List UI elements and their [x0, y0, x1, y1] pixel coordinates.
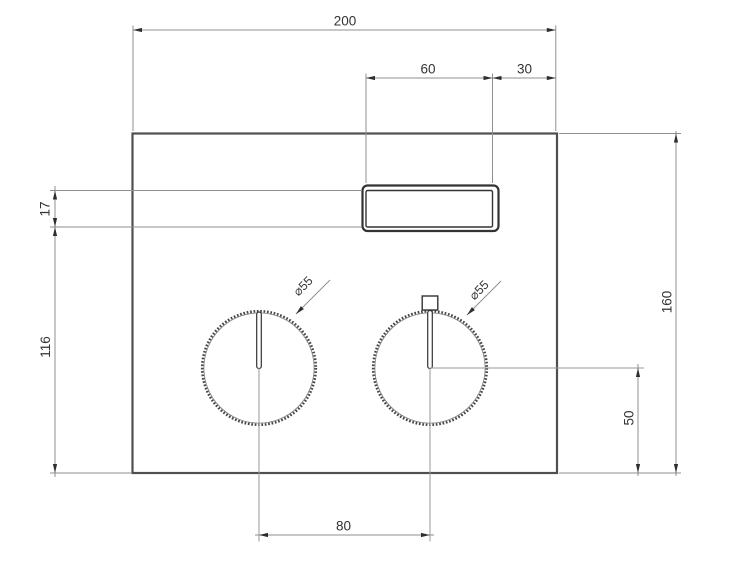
panel-part: [133, 134, 645, 542]
arrow-right-icon: [547, 76, 556, 80]
arrow-down-icon: [53, 218, 57, 227]
leader-left-knob-diameter: ⌀55: [291, 274, 330, 314]
arrow-up-icon: [674, 134, 678, 143]
right-knob-indicator-slot: [428, 311, 433, 369]
right-knob-top-button: [422, 296, 438, 310]
arrow-right-icon: [484, 76, 493, 80]
dim-knob-spacing-value: 80: [336, 519, 351, 534]
extension-lines: [50, 26, 681, 474]
dim-knob-axis-to-bottom: 50: [622, 364, 641, 476]
arrow-up-icon: [636, 368, 640, 377]
dim-window-to-bottom-value: 116: [38, 336, 53, 358]
left-knob-indicator-slot: [257, 312, 262, 369]
dim-right-knob-diameter-value: ⌀55: [467, 278, 492, 303]
dim-knob-spacing: 80: [255, 519, 434, 538]
dim-window-to-bottom: 116: [38, 227, 57, 473]
dim-overall-width: 200: [133, 14, 556, 33]
arrow-right-icon: [421, 533, 430, 537]
technical-drawing-page: 200 60 30 17 116: [0, 0, 736, 569]
arrow-left-icon: [366, 76, 375, 80]
arrow-left-icon: [493, 76, 502, 80]
dim-overall-height: 160: [660, 131, 679, 476]
dim-left-knob-diameter-value: ⌀55: [291, 274, 316, 299]
dim-window-width-value: 60: [420, 62, 435, 77]
arrow-left-icon: [259, 533, 268, 537]
arrow-up-icon: [53, 191, 57, 200]
leader-right-knob-diameter: ⌀55: [467, 278, 501, 315]
arrow-down-icon: [674, 464, 678, 473]
arrow-down-icon: [53, 464, 57, 473]
technical-drawing-canvas: 200 60 30 17 116: [0, 0, 736, 569]
dim-knob-axis-to-bottom-value: 50: [622, 410, 637, 425]
arrow-up-icon: [53, 227, 57, 236]
arrow-left-icon: [133, 28, 142, 32]
dim-overall-width-value: 200: [334, 14, 357, 29]
dim-overall-height-value: 160: [660, 291, 675, 314]
dim-window-right-gap: 30: [493, 62, 556, 81]
dim-window-height: 17: [38, 186, 58, 477]
dim-window-right-gap-value: 30: [517, 62, 532, 77]
display-window-inner: [366, 191, 493, 228]
arrow-right-icon: [547, 28, 556, 32]
display-window-outer: [363, 186, 499, 232]
dim-window-height-value: 17: [38, 201, 53, 216]
arrow-down-icon: [636, 464, 640, 473]
